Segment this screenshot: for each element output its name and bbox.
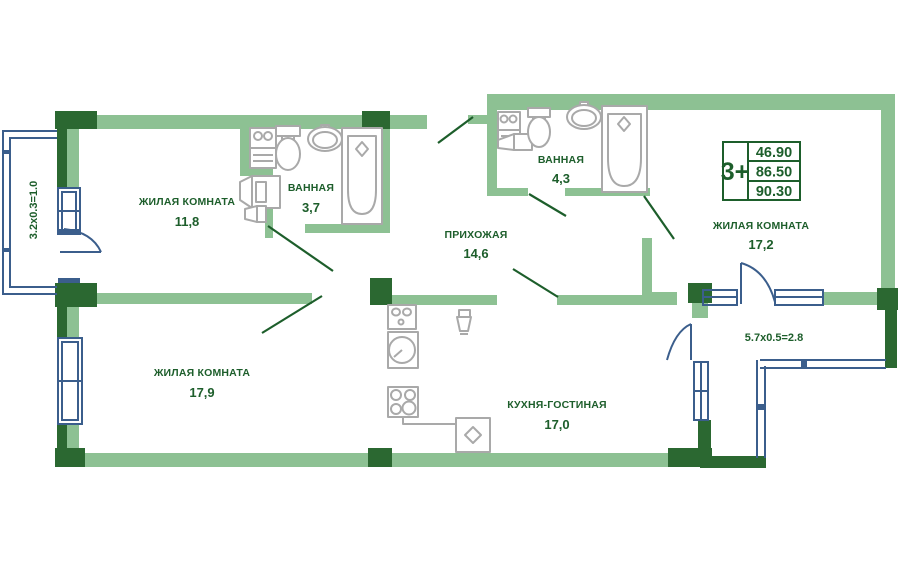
counter-sink-icon <box>388 305 416 329</box>
kitchen-sink-icon <box>456 418 490 452</box>
room-label-living2: ЖИЛАЯ КОМНАТА <box>712 220 810 232</box>
entry-door-line <box>438 117 473 143</box>
room-area-bath2: 4,3 <box>552 171 570 186</box>
window-living2-b <box>775 290 823 305</box>
room-label-living3: ЖИЛАЯ КОМНАТА <box>153 367 251 379</box>
boiler-icon <box>457 310 471 334</box>
legend-area-total: 90.30 <box>756 184 792 200</box>
balcony-right-railing <box>757 360 886 458</box>
balcony-right-dimensions: 5.7х0.5=2.8 <box>745 332 803 344</box>
counter-line <box>403 417 456 424</box>
legend-area-no-balcony: 86.50 <box>756 165 792 181</box>
washing-machine-icon <box>240 176 280 208</box>
room-area-kitchen: 17,0 <box>544 417 569 432</box>
kitchen-fixtures <box>388 305 490 452</box>
bathroom2-fixtures <box>498 102 647 192</box>
balcony-door-living2 <box>741 263 775 304</box>
toilet-icon <box>528 108 550 147</box>
living2-door-line <box>644 196 674 239</box>
kitchen-door-line <box>513 269 558 297</box>
stove-icon <box>388 387 418 417</box>
bathtub-icon <box>602 106 647 192</box>
bathtub-icon <box>342 128 382 224</box>
cabinet-icon <box>250 128 276 168</box>
window-living1 <box>58 188 80 234</box>
room-label-kitchen: КУХНЯ-ГОСТИНАЯ <box>507 399 607 411</box>
window-kitchen <box>694 362 708 420</box>
room-area-living2: 17,2 <box>748 237 773 252</box>
room-area-living1: 11,8 <box>175 214 200 229</box>
washing-machine-icon <box>388 332 418 368</box>
balcony-left-dimensions: 3.2х0.3=1.0 <box>28 181 40 239</box>
balcony-door-kitchen <box>667 324 691 360</box>
balcony-door-living1 <box>58 229 101 283</box>
door-arc <box>741 263 775 302</box>
toilet-icon <box>276 126 300 170</box>
room-area-living3: 17,9 <box>189 385 214 400</box>
room-label-living1: ЖИЛАЯ КОМНАТА <box>138 196 236 208</box>
tv-icon <box>245 206 266 222</box>
room-label-bath2: ВАННАЯ <box>538 154 584 166</box>
window-living3 <box>58 338 82 424</box>
door-arc <box>667 324 691 360</box>
room-area-bath1: 3,7 <box>302 200 320 215</box>
bath2-door-line <box>529 194 566 216</box>
room-area-hall: 14,6 <box>463 246 488 261</box>
windows <box>58 188 823 424</box>
legend-table: 3+ 46.90 86.50 90.30 <box>721 142 800 200</box>
floor-plan-svg: ЖИЛАЯ КОМНАТА 11,8 ВАННАЯ 3,7 ПРИХОЖАЯ 1… <box>0 0 900 562</box>
legend-room-count: 3+ <box>721 158 750 186</box>
legend-area-living: 46.90 <box>756 145 792 161</box>
room-label-bath1: ВАННАЯ <box>288 182 334 194</box>
floor-plan-page: ЖИЛАЯ КОМНАТА 11,8 ВАННАЯ 3,7 ПРИХОЖАЯ 1… <box>0 0 900 562</box>
room-label-hall: ПРИХОЖАЯ <box>444 229 507 241</box>
